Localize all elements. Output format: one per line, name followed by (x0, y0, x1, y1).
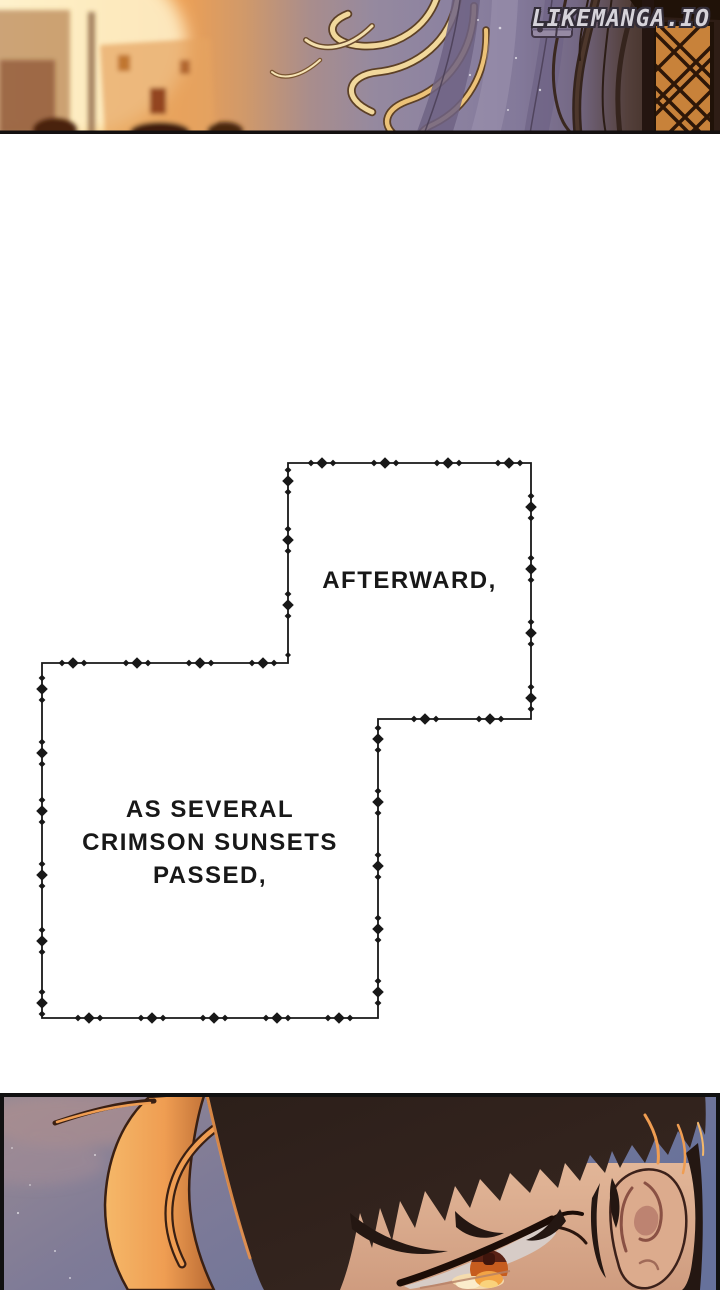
border-diamond (325, 1015, 332, 1022)
panel-border-bottom (0, 131, 720, 135)
border-diamond (97, 1015, 104, 1022)
panel-face-closeup (0, 1093, 720, 1290)
border-diamond (222, 1015, 229, 1022)
caption-line: AFTERWARD, (322, 564, 497, 597)
caption-line: CRIMSON SUNSETS (82, 826, 338, 859)
panel-sunset-street: LIKEMANGA.IO (0, 0, 720, 134)
border-diamond (81, 660, 88, 667)
border-diamond (285, 1015, 292, 1022)
border-diamond (330, 460, 337, 467)
border-diamond (525, 692, 537, 704)
border-diamond (59, 660, 66, 667)
border-diamond (263, 1015, 270, 1022)
border-diamond (371, 460, 378, 467)
border-diamond (434, 460, 441, 467)
border-diamond (208, 660, 215, 667)
border-diamond (83, 1012, 95, 1024)
site-watermark: LIKEMANGA.IO (532, 6, 710, 32)
border-diamond (393, 460, 400, 467)
border-diamond (271, 660, 278, 667)
caption-line: PASSED, (153, 859, 267, 892)
border-diamond (498, 716, 505, 723)
border-diamond (146, 1012, 158, 1024)
border-diamond (249, 660, 256, 667)
border-diamond (517, 460, 524, 467)
border-diamond (411, 716, 418, 723)
border-diamond (200, 1015, 207, 1022)
border-diamond (333, 1012, 345, 1024)
border-diamond (476, 716, 483, 723)
border-diamond (257, 657, 269, 669)
border-diamond (186, 660, 193, 667)
manga-reader-page: LIKEMANGA.IO AFTERWARD, AS SEVERAL CRIMS… (0, 0, 720, 1290)
border-diamond (145, 660, 152, 667)
narration-caption-afterward: AFTERWARD, (288, 468, 531, 693)
border-diamond (495, 460, 502, 467)
border-diamond (419, 713, 431, 725)
caption-line: AS SEVERAL (126, 793, 294, 826)
border-diamond (528, 706, 535, 713)
border-diamond (75, 1015, 82, 1022)
border-diamond (208, 1012, 220, 1024)
border-diamond (160, 1015, 167, 1022)
border-diamond (433, 716, 440, 723)
border-diamond (308, 460, 315, 467)
border-diamond (138, 1015, 145, 1022)
border-diamond (456, 460, 463, 467)
border-diamond (484, 713, 496, 725)
narration-caption-sunsets: AS SEVERAL CRIMSON SUNSETS PASSED, (42, 672, 378, 1012)
border-diamond (131, 657, 143, 669)
face-closeup-art (0, 1093, 720, 1290)
border-diamond (194, 657, 206, 669)
border-diamond (123, 660, 130, 667)
border-diamond (67, 657, 79, 669)
border-diamond (347, 1015, 354, 1022)
border-diamond (271, 1012, 283, 1024)
